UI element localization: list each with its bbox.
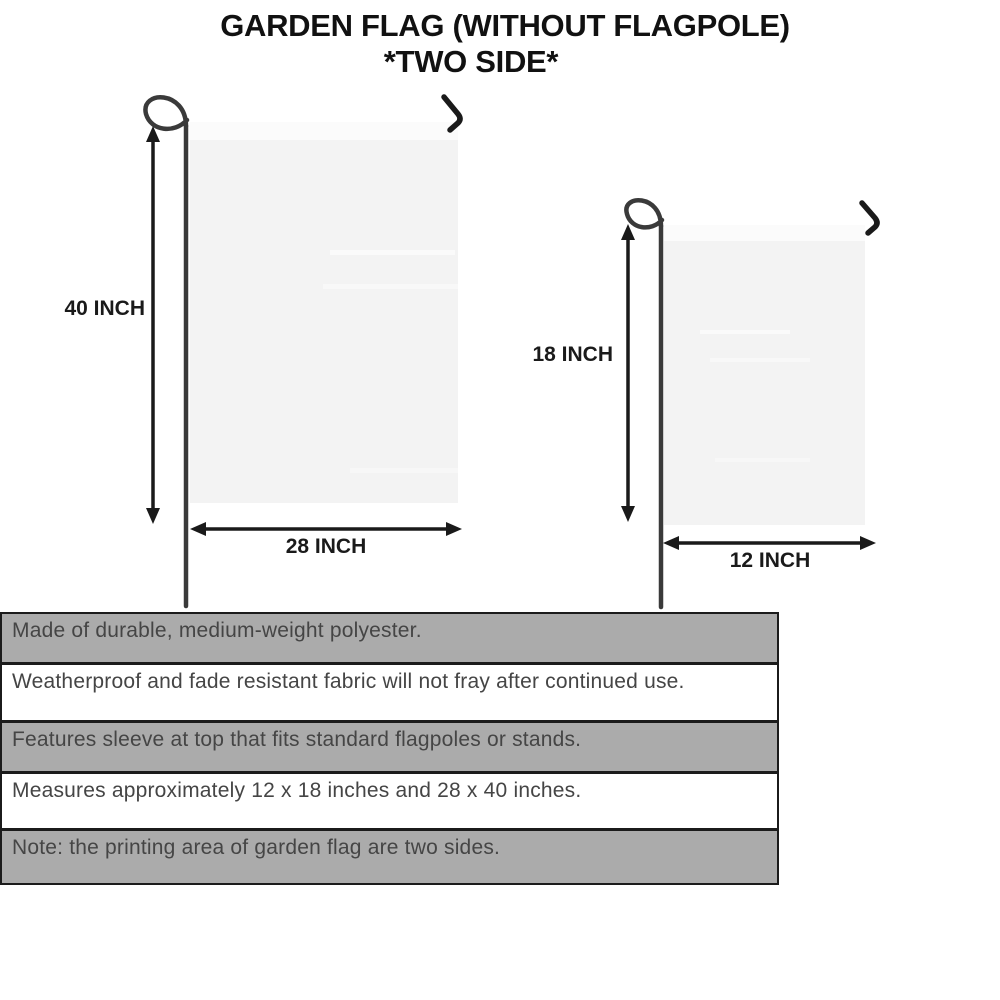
- large-flag-crease: [323, 284, 473, 289]
- large-flag-fabric: [190, 122, 458, 503]
- small-flag-width-label: 12 INCH: [670, 549, 870, 573]
- flag-size-diagram: [0, 0, 1000, 612]
- small-height-arrow: [621, 224, 635, 522]
- feature-row-measurements: Measures approximately 12 x 18 inches an…: [2, 774, 777, 831]
- large-height-arrow: [146, 126, 160, 524]
- feature-row-note: Note: the printing area of garden flag a…: [2, 831, 777, 883]
- small-flag-sleeve: [664, 225, 865, 241]
- large-flag-width-label: 28 INCH: [226, 535, 426, 559]
- product-feature-table: Made of durable, medium-weight polyester…: [0, 612, 779, 885]
- large-flag-height-label: 40 INCH: [35, 297, 145, 321]
- large-flag-crease: [350, 468, 465, 473]
- small-flag-crease: [715, 458, 810, 462]
- feature-row-sleeve: Features sleeve at top that fits standar…: [2, 723, 777, 774]
- small-flagpole-loop-icon: [626, 200, 662, 227]
- small-flag-group: [621, 200, 877, 607]
- large-flagpole-loop-icon: [145, 97, 187, 129]
- feature-row-material: Made of durable, medium-weight polyester…: [2, 614, 777, 665]
- small-flag-crease: [700, 330, 790, 334]
- large-flag-group: [145, 97, 473, 606]
- large-width-arrow: [190, 522, 462, 536]
- large-flag-crease: [330, 250, 455, 255]
- small-width-arrow: [663, 536, 876, 550]
- small-flag-height-label: 18 INCH: [503, 343, 613, 367]
- small-flag-crease: [710, 358, 810, 362]
- large-flag-sleeve: [190, 122, 458, 140]
- feature-row-weatherproof: Weatherproof and fade resistant fabric w…: [2, 665, 777, 723]
- product-infographic: GARDEN FLAG (WITHOUT FLAGPOLE) *TWO SIDE…: [0, 0, 1000, 1000]
- small-flag-fabric: [664, 225, 865, 525]
